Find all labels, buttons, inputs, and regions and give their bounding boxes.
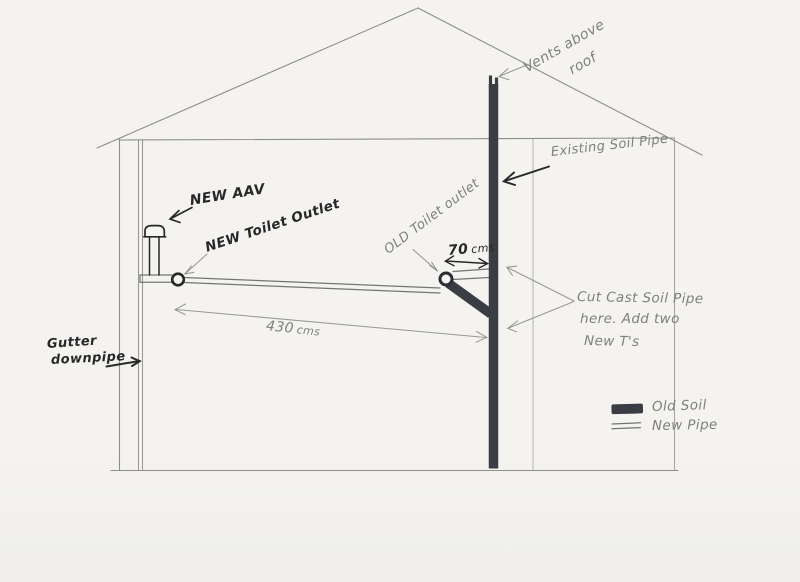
legend-new-pipe-label: New Pipe (652, 419, 718, 434)
new-pipe-branch-top (453, 269, 489, 272)
annotation-arrows (107, 65, 575, 367)
old-toilet-outlet-opening (440, 273, 452, 285)
cut-note-arrow-upper (508, 268, 575, 302)
legend-new-pipe-swatch-top (612, 423, 641, 424)
cut-note-arrow-lower (509, 302, 575, 329)
aav-cap (145, 226, 164, 237)
new-pipe-run-top (184, 278, 440, 289)
dimension-70cms-value: 70 (447, 241, 469, 259)
new-pipe-run-bottom (184, 283, 440, 294)
aav-assembly (144, 226, 166, 275)
dimension-arrows (175, 256, 488, 342)
gutter-downpipe-label-line2: downpipe (51, 350, 126, 367)
dimension-430cms-unit: cms (296, 323, 321, 338)
old-toilet-outlet-arrowhead (430, 262, 438, 271)
gutter-downpipe (139, 141, 143, 471)
new-pipe-branch-bottom (453, 278, 489, 280)
cut-note-line1: Cut Cast Soil Pipe (577, 291, 704, 307)
dim-430-arrowhead-left (175, 304, 186, 315)
dim-70-line (446, 261, 487, 264)
roof-left-line (97, 8, 418, 148)
legend-swatches (611, 404, 643, 429)
cut-note-line2: here. Add two (580, 313, 680, 327)
cut-note-line3: New T's (584, 335, 640, 349)
dim-430-line (176, 310, 486, 338)
old-toilet-branch-pipe (448, 283, 491, 314)
soil-pipe (448, 76, 497, 469)
new-aav-arrow (171, 208, 192, 219)
new-toilet-outlet-arrow (186, 254, 208, 274)
new-toilet-outlet-opening (172, 274, 184, 286)
dimension-70cms-unit: cms (471, 241, 496, 256)
old-toilet-outlet-arrow (413, 250, 438, 272)
legend-old-soil-label: Old Soil (652, 399, 707, 414)
legend-old-soil-swatch (611, 404, 643, 415)
dimension-430cms-value: 430 (265, 318, 294, 337)
gutter-downpipe-label-line1: Gutter (47, 335, 98, 351)
sketch-canvas: Vents above roof Existing Soil Pipe NEW … (0, 0, 800, 582)
legend-new-pipe-swatch-bottom (612, 428, 641, 429)
